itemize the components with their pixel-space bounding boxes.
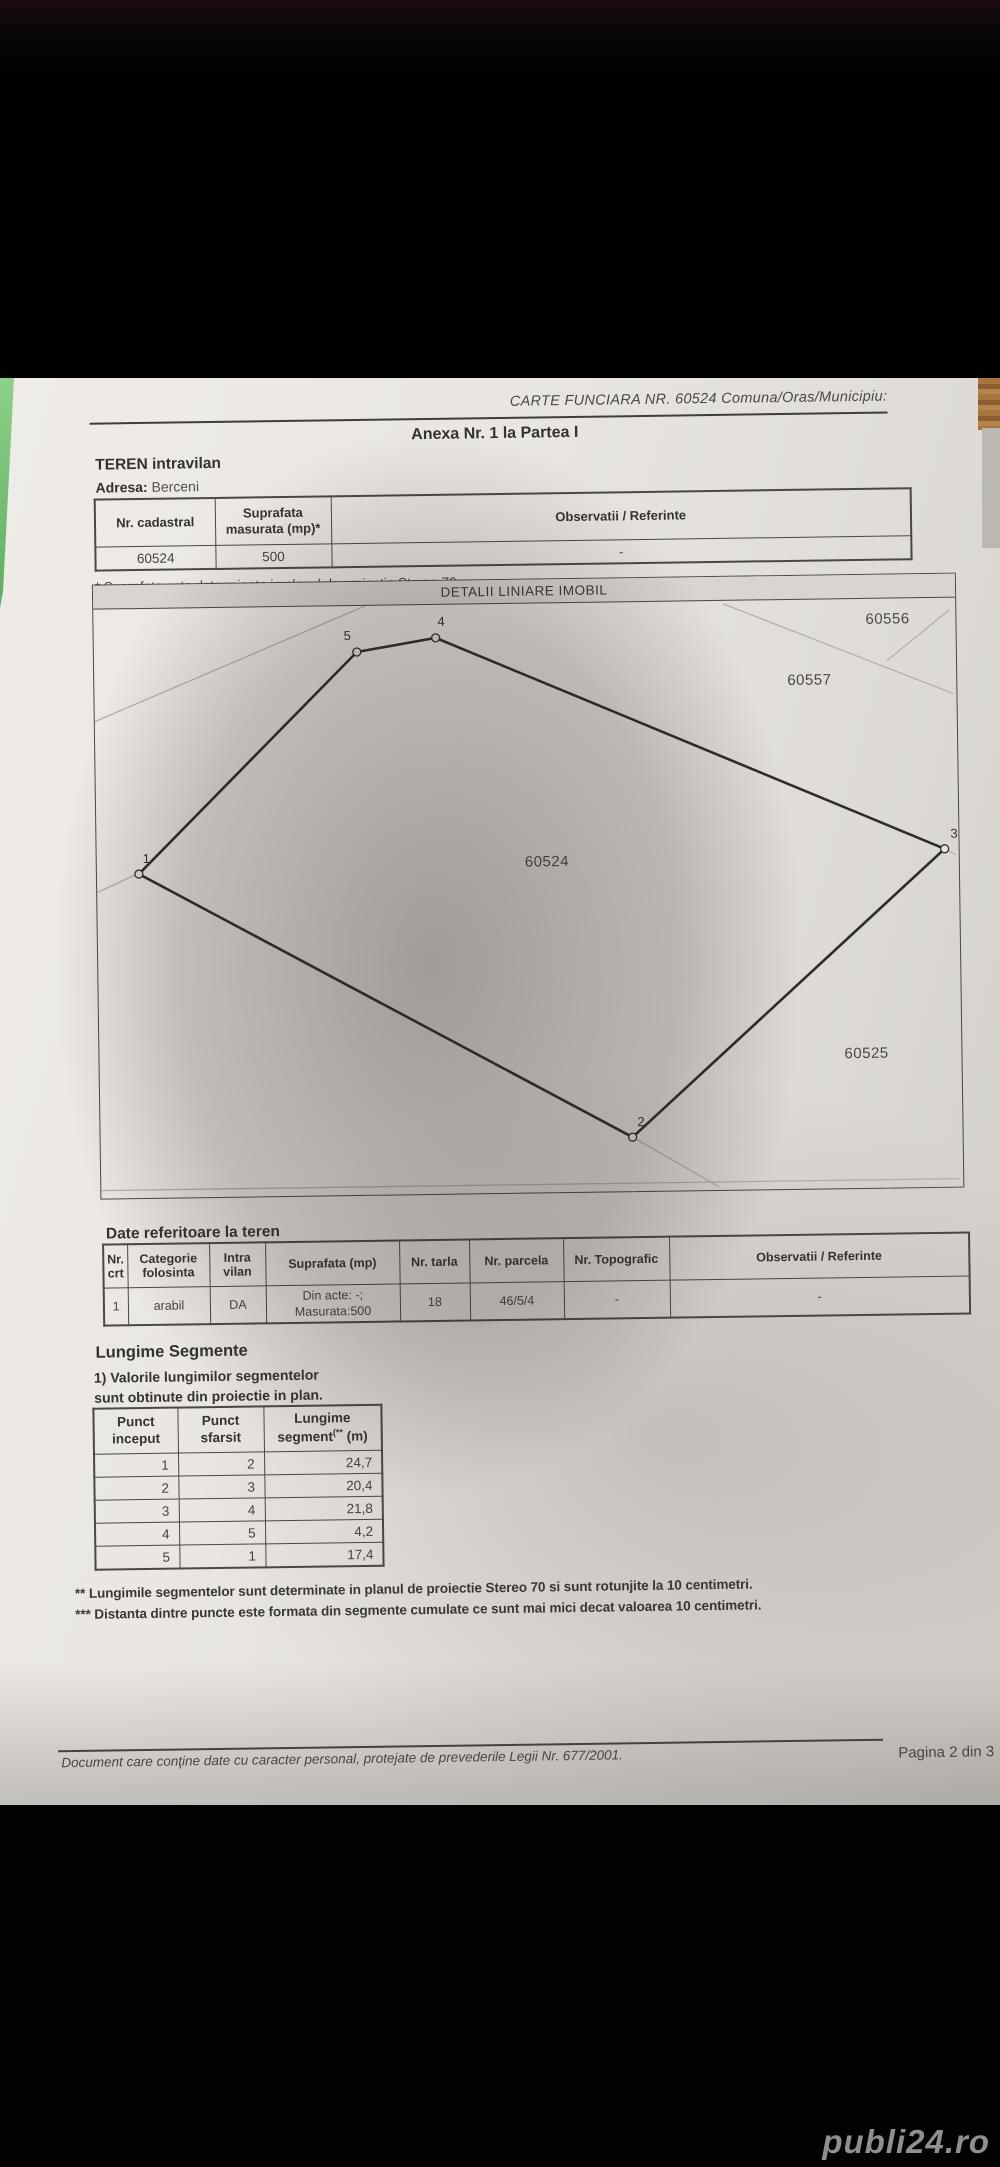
col-suprafata-mp: Suprafata (mp) xyxy=(265,1240,400,1285)
teren-section-title: TEREN intravilan xyxy=(95,455,221,475)
point-label-4: 4 xyxy=(437,614,444,629)
screenshot-canvas: CARTE FUNCIARA NR. 60524 Comuna/Oras/Mun… xyxy=(0,0,1000,2167)
cell-din-acte: Din acte: -; xyxy=(267,1286,398,1304)
letterbox-top xyxy=(0,0,1000,378)
cell-categorie: arabil xyxy=(128,1287,211,1326)
cadastral-map-box: DETALII LINIARE IMOBIL xyxy=(92,573,965,1200)
col-nr-tarla: Nr. tarla xyxy=(399,1239,470,1283)
point-label-1: 1 xyxy=(143,851,150,866)
cell-observatii-ref: - xyxy=(670,1276,970,1318)
cell-nr-crt: 1 xyxy=(104,1288,129,1326)
address-label: Adresa: xyxy=(95,479,147,496)
col-punct-inceput: Punct inceput xyxy=(93,1408,178,1455)
point-label-2: 2 xyxy=(637,1114,644,1129)
cell-tarla: 18 xyxy=(400,1283,471,1321)
segment-superscript: (** xyxy=(333,1428,343,1438)
parcel-label-60557: 60557 xyxy=(787,671,831,689)
col-lungime-segment: Lungime segment(** (m) xyxy=(263,1405,382,1452)
cell-suprafata-mp: Din acte: -; Masurata:500 xyxy=(266,1284,401,1323)
col-observatii-referinte: Observatii / Referinte xyxy=(669,1232,970,1280)
segments-header-row: Punct inceput Punct sfarsit Lungime segm… xyxy=(93,1405,382,1455)
anexa-title: Anexa Nr. 1 la Partea I xyxy=(325,423,665,446)
parcel-label-60525: 60525 xyxy=(844,1045,888,1063)
lungime-segmente-title: Lungime Segmente xyxy=(95,1342,247,1363)
cell-suprafata: 500 xyxy=(215,544,331,569)
col-suprafata-masurata: Suprafata masurata (mp)* xyxy=(215,496,332,545)
segment-note-line1: 1) Valorile lungimilor segmentelor xyxy=(94,1367,319,1386)
segments-table: Punct inceput Punct sfarsit Lungime segm… xyxy=(92,1404,384,1571)
cell-nr-cadastral: 60524 xyxy=(95,545,215,570)
parcel-label-60524: 60524 xyxy=(525,853,569,871)
segment-note-line2: sunt obtinute din proiectie in plan. xyxy=(94,1387,323,1406)
letterbox-bottom: publi24.ro xyxy=(0,1805,1000,2167)
cell-masurata: Masurata:500 xyxy=(267,1302,398,1320)
point-label-3: 3 xyxy=(950,826,957,841)
col-nr-crt: Nr. crt xyxy=(103,1244,128,1288)
page-number: Pagina 2 din 3 xyxy=(898,1743,994,1761)
photo-of-document: CARTE FUNCIARA NR. 60524 Comuna/Oras/Mun… xyxy=(0,378,1000,1805)
col-categorie: Categorie folosinta xyxy=(127,1243,210,1288)
cell-topografic: - xyxy=(564,1280,671,1319)
address-value: Berceni xyxy=(151,478,199,495)
carte-funciara-header: CARTE FUNCIARA NR. 60524 Comuna/Oras/Mun… xyxy=(510,389,888,410)
col-observatii: Observatii / Referinte xyxy=(331,488,912,544)
privacy-notice: Document care conţine date cu caracter p… xyxy=(61,1747,623,1770)
col-nr-topografic: Nr. Topografic xyxy=(563,1237,670,1282)
map-interior: 60556 60557 60524 60525 1 2 3 4 5 xyxy=(93,598,963,1196)
point-label-5: 5 xyxy=(344,628,351,643)
publi24-watermark: publi24.ro xyxy=(822,2123,990,2161)
parcel-label-60556: 60556 xyxy=(865,610,909,628)
cell-parcela: 46/5/4 xyxy=(470,1282,565,1321)
cell-intravilan: DA xyxy=(210,1286,267,1324)
teren-details-table: Nr. crt Categorie folosinta Intra vilan … xyxy=(102,1231,971,1326)
col-punct-sfarsit: Punct sfarsit xyxy=(177,1406,264,1453)
address-line: Adresa: Berceni xyxy=(95,478,199,495)
col-nr-parcela: Nr. parcela xyxy=(469,1238,564,1283)
col-intravilan: Intra vilan xyxy=(209,1242,266,1286)
col-nr-cadastral: Nr. cadastral xyxy=(95,498,216,547)
segment-row-5: 5 1 17,4 xyxy=(95,1542,383,1570)
cadastral-table: Nr. cadastral Suprafata masurata (mp)* O… xyxy=(94,487,913,571)
document-page: CARTE FUNCIARA NR. 60524 Comuna/Oras/Mun… xyxy=(0,378,1000,1805)
header-rule xyxy=(90,412,888,425)
